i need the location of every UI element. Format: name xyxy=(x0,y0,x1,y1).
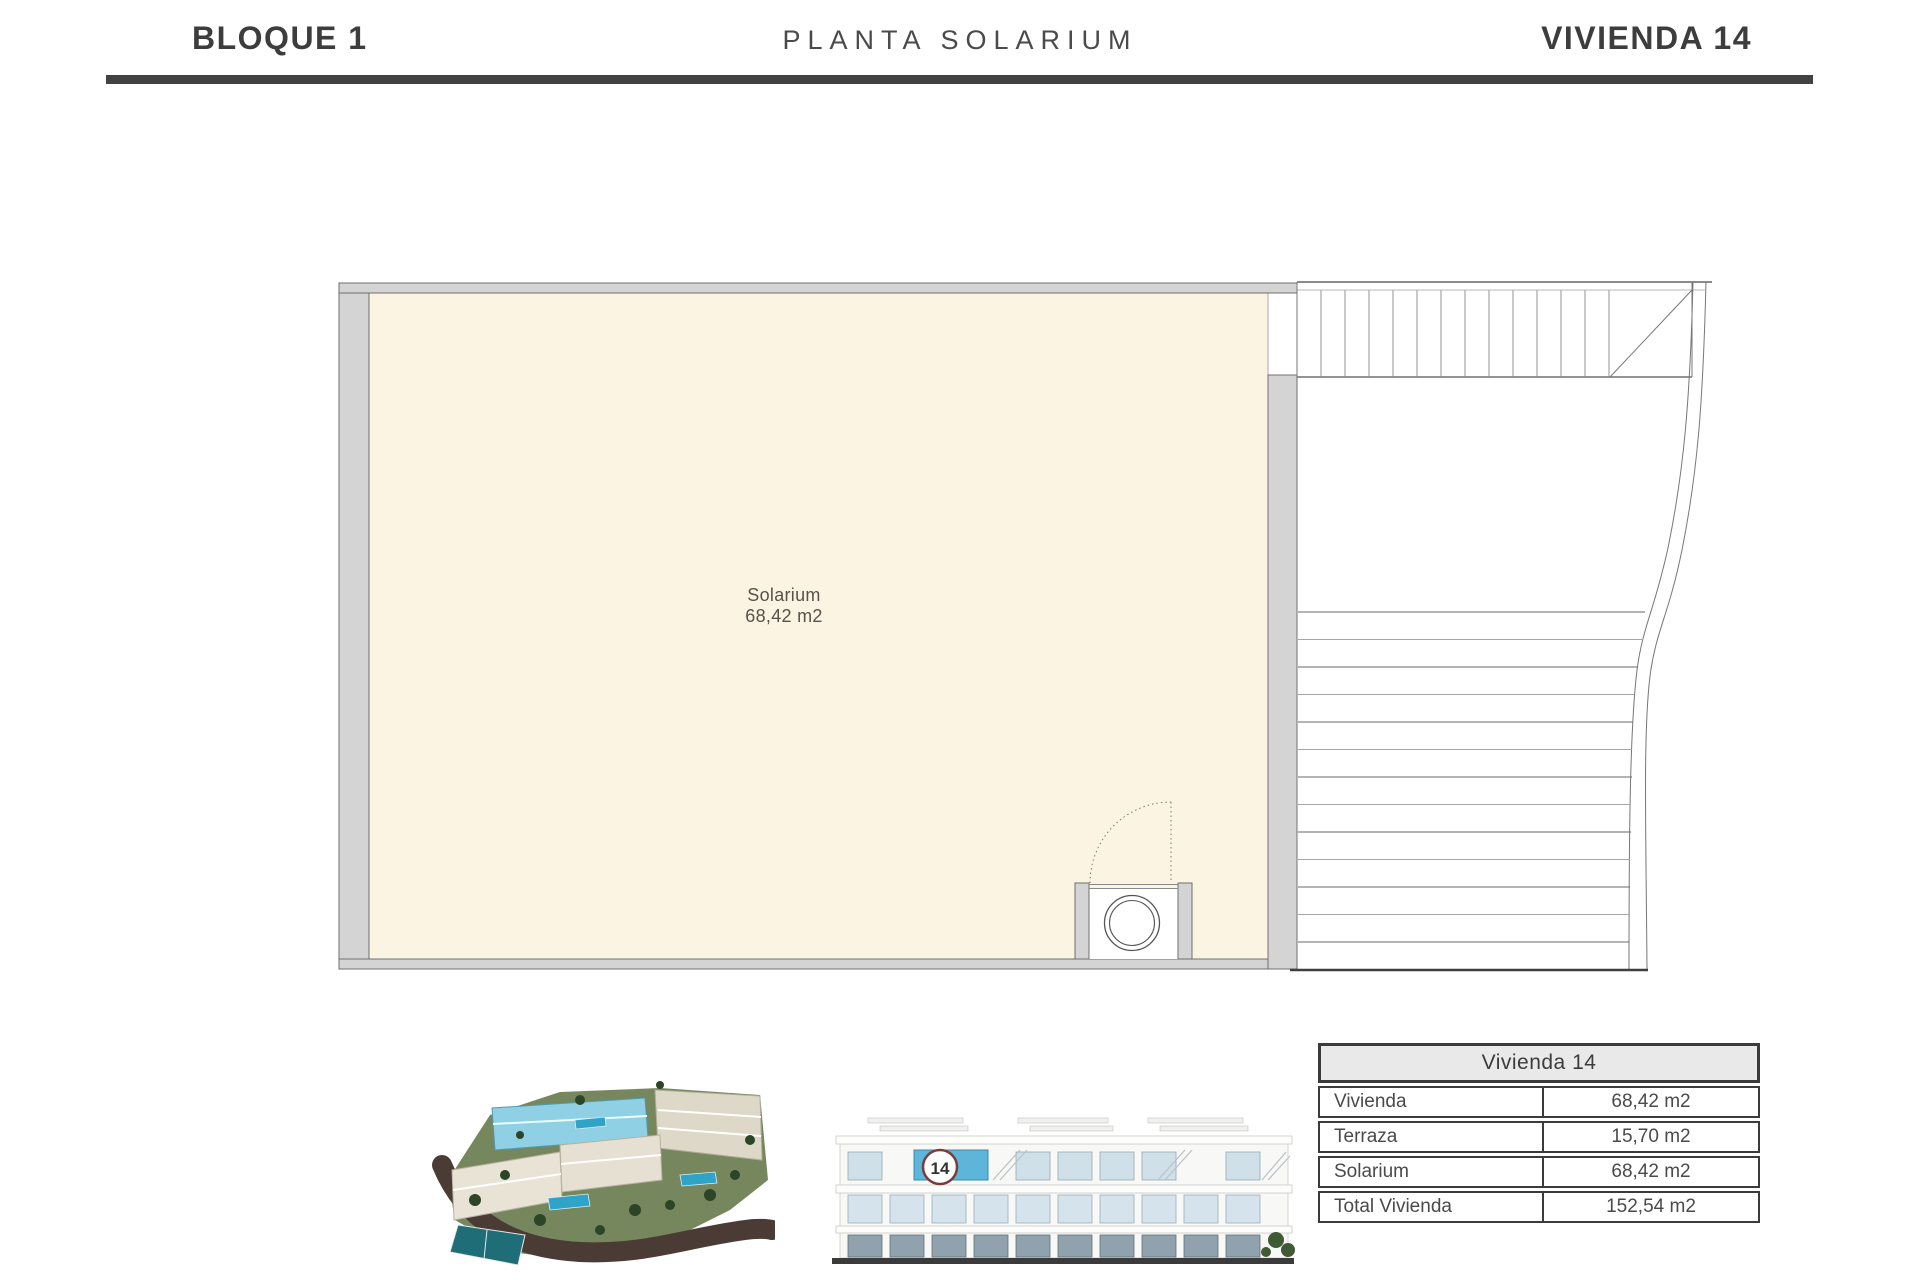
wall-top xyxy=(339,283,1297,293)
summary-table: Vivienda 14 Vivienda 68,42 m2 Terraza 15… xyxy=(1318,1043,1760,1223)
table-row: Total Vivienda 152,54 m2 xyxy=(1318,1191,1760,1223)
stair-direction-diagonal xyxy=(1610,290,1692,377)
unit-badge-number: 14 xyxy=(931,1159,950,1178)
complex-aerial-render xyxy=(430,1080,775,1270)
stairs-upper-run xyxy=(1297,282,1712,377)
table-row: Vivienda 68,42 m2 xyxy=(1318,1086,1760,1118)
room-label: Solarium 68,42 m2 xyxy=(700,585,868,627)
plan-sheet-page: BLOQUE 1 PLANTA SOLARIUM VIVIENDA 14 xyxy=(0,0,1920,1280)
table-row: Terraza 15,70 m2 xyxy=(1318,1121,1760,1153)
unit-badge: 14 xyxy=(923,1150,957,1184)
wall-stair-divider xyxy=(1268,375,1297,969)
utility-enclosure xyxy=(1075,883,1192,959)
wall-bottom xyxy=(339,959,1297,969)
stair-curved-wall xyxy=(1629,282,1706,970)
row-value: 68,42 m2 xyxy=(1544,1088,1758,1116)
row-label: Vivienda xyxy=(1320,1088,1544,1116)
row-label: Solarium xyxy=(1320,1158,1544,1186)
row-value: 15,70 m2 xyxy=(1544,1123,1758,1151)
building-elevation: 14 xyxy=(828,1110,1298,1270)
roof-pergolas xyxy=(868,1118,1248,1131)
stairs-lower-run xyxy=(1290,612,1648,970)
unit-title: VIVIENDA 14 xyxy=(1541,20,1752,57)
room-area: 68,42 m2 xyxy=(700,606,868,627)
floor-plan-drawing xyxy=(330,275,1720,980)
row-label: Total Vivienda xyxy=(1320,1193,1544,1221)
row-value: 68,42 m2 xyxy=(1544,1158,1758,1186)
upper-stair-treads xyxy=(1321,290,1609,377)
circular-fixture-icon xyxy=(1105,896,1160,951)
row-label: Terraza xyxy=(1320,1123,1544,1151)
wall-left xyxy=(339,283,369,969)
table-row: Solarium 68,42 m2 xyxy=(1318,1156,1760,1188)
room-name: Solarium xyxy=(700,585,868,606)
summary-table-title: Vivienda 14 xyxy=(1318,1043,1760,1083)
header-rule xyxy=(106,75,1813,84)
row-value: 152,54 m2 xyxy=(1544,1193,1758,1221)
ground-line xyxy=(832,1258,1294,1264)
